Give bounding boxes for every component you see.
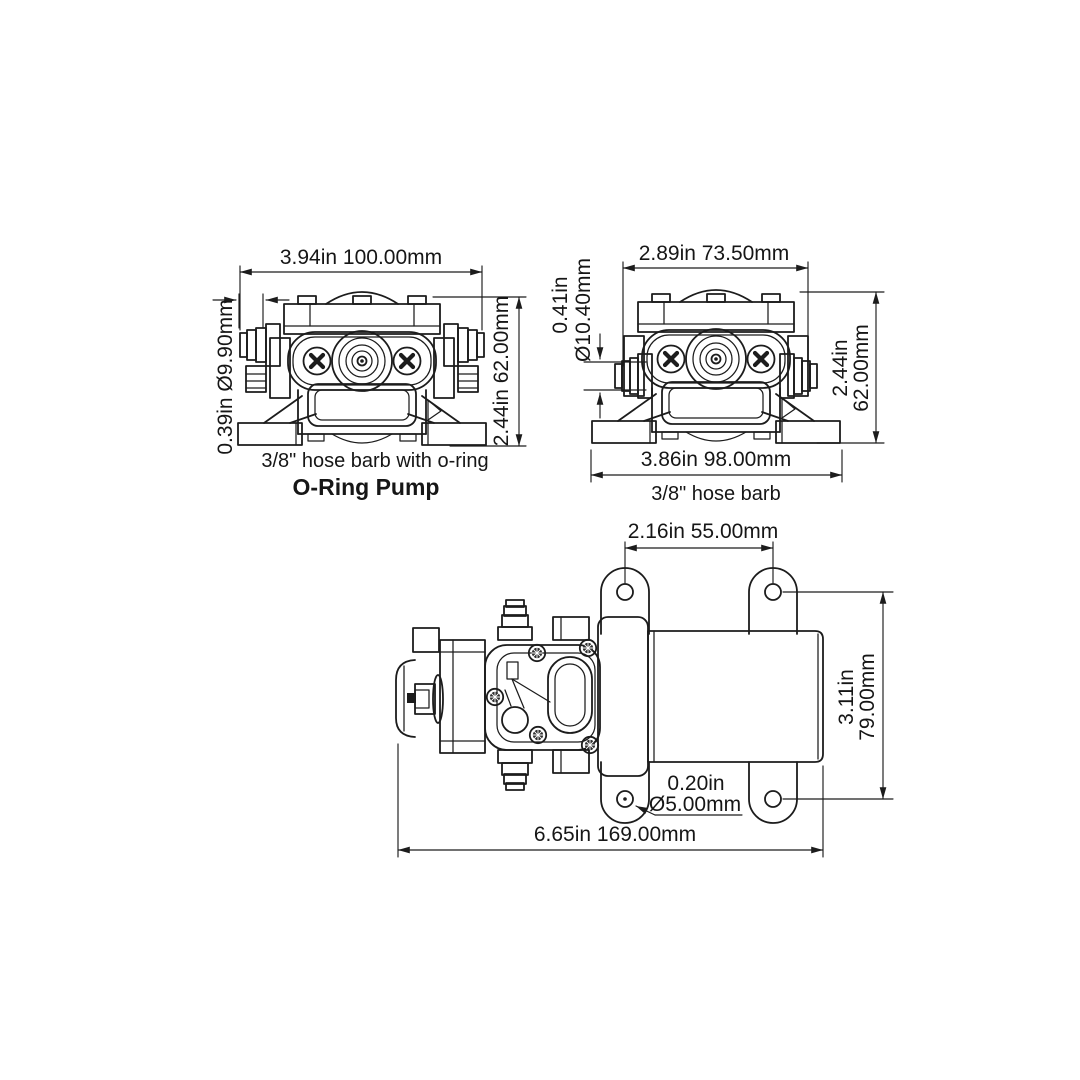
dim-feet-label-front-right: 3.86in 98.00mm [641, 448, 792, 471]
dim-length-label-side: 6.65in 169.00mm [534, 823, 696, 846]
caption-hose-barb-oring: 3/8" hose barb with o-ring [261, 450, 488, 472]
dim-hole-span-side [625, 542, 773, 583]
hose-barb-bottom [498, 750, 589, 790]
dim-hole-span-label-side: 2.16in 55.00mm [628, 520, 779, 543]
dim-height-label-front-left: 2.44in 62.00mm [490, 296, 513, 447]
hose-barb-top [498, 600, 589, 640]
dim-height-in-label-front-right: 2.44in [829, 339, 852, 396]
caption-hose-barb: 3/8" hose barb [651, 483, 780, 505]
hose-barb-right-oring [444, 324, 484, 392]
pressure-switch-cap [396, 628, 485, 753]
dim-width-front-left [240, 266, 482, 330]
dim-barb-label-front-left: 0.39in Ø9.90mm [214, 299, 237, 454]
dim-barb-in-label-front-right: 0.41in [549, 276, 572, 333]
pump-dimension-drawing-page: 3.94in 100.00mm 0.39in Ø9.90mm 2.44in 62… [0, 0, 1080, 1080]
pump-dimension-drawing: 3.94in 100.00mm 0.39in Ø9.90mm 2.44in 62… [0, 0, 1080, 1080]
dim-width-label-front-left: 3.94in 100.00mm [280, 246, 442, 269]
hose-barb-left-oring [240, 324, 280, 392]
dim-height-mm-label-front-right: 62.00mm [850, 324, 873, 412]
dim-width-label-front-right: 2.89in 73.50mm [639, 242, 790, 265]
dim-width-front-right [623, 262, 808, 366]
dim-height-in-label-side: 3.11in [835, 669, 858, 725]
motor-body [598, 617, 823, 776]
front-view-oring-pump [213, 266, 526, 446]
side-view-pump [396, 542, 893, 857]
dim-height-mm-label-side: 79.00mm [856, 653, 879, 741]
dim-hole-mm-label-side: Ø5.00mm [649, 793, 741, 816]
dim-barb-mm-label-front-right: Ø10.40mm [572, 258, 595, 362]
title-oring-pump: O-Ring Pump [293, 474, 440, 500]
dim-hole-in-label-side: 0.20in [667, 772, 724, 795]
pump-head-side [485, 640, 600, 753]
